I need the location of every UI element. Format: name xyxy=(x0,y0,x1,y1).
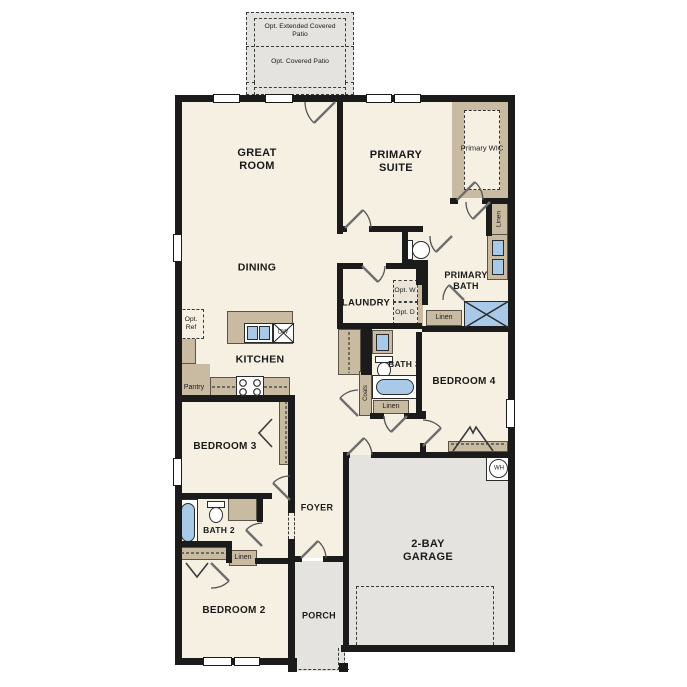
label-opt-ref: Opt. Ref xyxy=(179,316,203,332)
label-bath-2: BATH 2 xyxy=(189,525,249,535)
label-primary-suite: PRIMARY SUITE xyxy=(357,149,435,175)
door-swing-overlay xyxy=(0,0,687,687)
label-linen-bath-2: Linen xyxy=(228,554,258,562)
label-opt-washer: Opt. W xyxy=(394,287,416,295)
label-kitchen: KITCHEN xyxy=(220,354,300,367)
label-primary-wic: Primary WIC xyxy=(459,144,505,153)
label-water-heater: WH xyxy=(489,465,509,472)
label-linen-bath-3: Linen xyxy=(373,403,409,411)
label-dishwasher: DW xyxy=(273,329,293,336)
door-arcs xyxy=(211,102,483,588)
door-leaves xyxy=(211,102,490,581)
label-great-room: GREAT ROOM xyxy=(226,147,288,173)
floor-plan: GREAT ROOM DINING KITCHEN PRIMARY SUITE … xyxy=(0,0,687,687)
label-pantry: Pantry xyxy=(174,384,214,392)
label-laundry: LAUNDRY xyxy=(331,297,401,308)
label-garage: 2-BAY GARAGE xyxy=(392,538,464,564)
label-primary-bath: PRIMARY BATH xyxy=(434,270,498,292)
label-linen-wic: Linen xyxy=(496,211,503,227)
stove-burners-icon xyxy=(240,380,261,396)
label-linen-primary-bath: Linen xyxy=(426,314,462,322)
label-porch: PORCH xyxy=(289,611,349,622)
label-foyer: FOYER xyxy=(287,503,347,514)
label-coats: Coats xyxy=(363,385,369,401)
label-bedroom-4: BEDROOM 4 xyxy=(409,376,519,388)
shower-x-icon xyxy=(464,301,509,328)
label-opt-covered-patio: Opt. Covered Patio xyxy=(245,58,355,66)
label-bath-3: BATH 3 xyxy=(387,359,421,369)
label-opt-dryer: Opt. D xyxy=(394,309,416,317)
label-opt-extended-patio: Opt. Extended Covered Patio xyxy=(256,23,344,39)
label-bedroom-2: BEDROOM 2 xyxy=(179,605,289,617)
label-bedroom-3: BEDROOM 3 xyxy=(170,441,280,453)
label-dining: DINING xyxy=(222,262,292,275)
